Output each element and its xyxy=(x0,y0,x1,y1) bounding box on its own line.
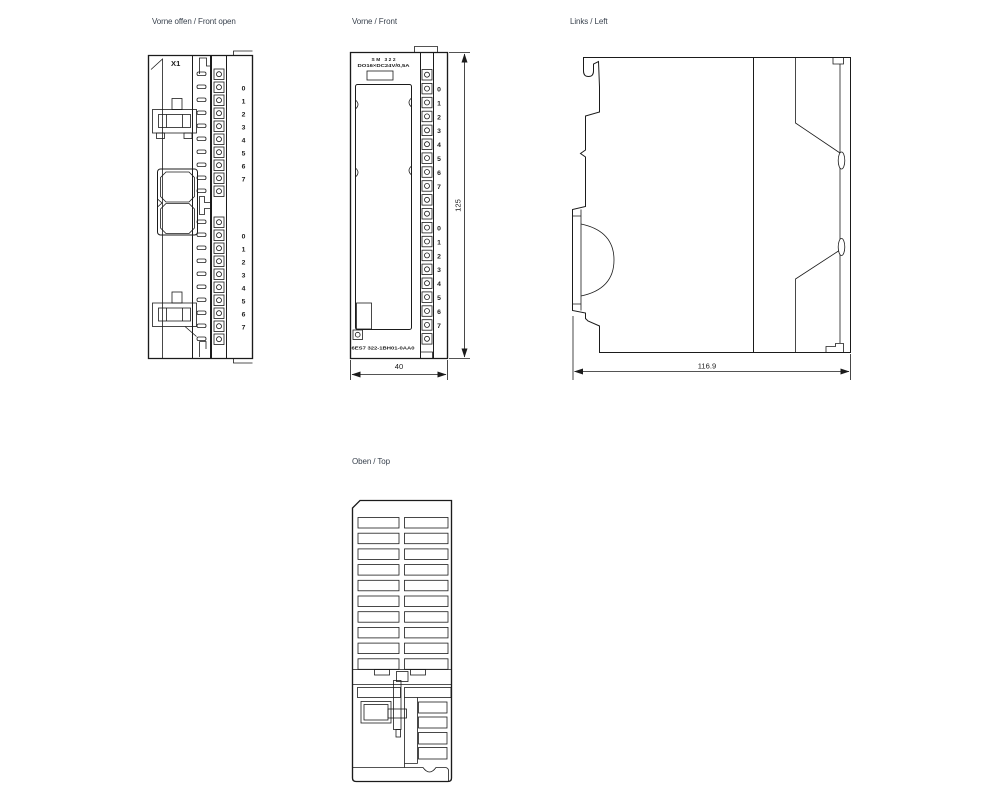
channel-numbers-upper: 01234567 xyxy=(437,87,441,191)
channel-number: 6 xyxy=(437,170,441,177)
led-windows-lower xyxy=(197,220,206,341)
front-edge-band xyxy=(353,768,449,782)
channel-number: 0 xyxy=(437,226,441,233)
connector-x1-label: X1 xyxy=(171,59,181,68)
front-door xyxy=(356,85,412,330)
channel-numbers-upper: 01234567 xyxy=(242,86,246,184)
channel-number: 3 xyxy=(437,267,441,274)
module-type-label: SM 322 xyxy=(372,57,396,63)
channel-number: 5 xyxy=(437,156,441,163)
front-connector-block xyxy=(361,681,407,738)
module-outline xyxy=(351,53,448,359)
wire-clamp-bottom xyxy=(153,292,197,337)
bus-connector-sockets xyxy=(158,169,198,235)
terminal-strip xyxy=(421,53,434,359)
dimension-height-125: 125 xyxy=(449,53,470,359)
channel-numbers-lower: 01234567 xyxy=(242,234,246,332)
channel-number: 7 xyxy=(242,325,246,332)
module-outline xyxy=(353,501,452,782)
dim-label-125: 125 xyxy=(454,199,463,212)
channel-number: 5 xyxy=(437,295,441,302)
channel-number: 4 xyxy=(242,138,246,145)
terminal-block xyxy=(422,70,432,345)
bottom-tab xyxy=(421,352,433,359)
order-number-label: 6ES7 322-1BH01-0AA0 xyxy=(352,346,415,352)
channel-number: 6 xyxy=(242,164,246,171)
channel-number: 4 xyxy=(242,286,246,293)
channel-number: 6 xyxy=(437,309,441,316)
mounting-screw-slot xyxy=(200,197,212,215)
view-front: SM 322 DO16×DC24V/0,5A 6ES7 322-1BH01-0A… xyxy=(351,47,471,381)
channel-number: 7 xyxy=(437,323,441,330)
dimension-depth-116-9: 116.9 xyxy=(573,316,851,380)
channel-number: 4 xyxy=(437,142,441,149)
wire-clamp-top xyxy=(153,99,197,139)
channel-number: 2 xyxy=(242,260,246,267)
view-front-open: X1 xyxy=(149,51,253,363)
channel-number: 3 xyxy=(242,273,246,280)
terminal-block-upper xyxy=(214,69,224,197)
channel-number: 1 xyxy=(242,247,246,254)
led-windows-upper xyxy=(197,72,206,193)
channel-number: 4 xyxy=(437,281,441,288)
channel-number: 0 xyxy=(242,234,246,241)
dimension-drawing-page: Vorne offen / Front open Vorne / Front L… xyxy=(0,0,1000,801)
module-spec-label: DO16×DC24V/0,5A xyxy=(358,63,411,69)
channel-number: 5 xyxy=(242,151,246,158)
channel-number: 2 xyxy=(437,114,441,121)
lower-slots-and-channel xyxy=(358,688,452,768)
channel-number: 7 xyxy=(242,177,246,184)
side-profile-outline xyxy=(573,58,851,353)
terminal-strip xyxy=(212,56,227,359)
channel-number: 1 xyxy=(437,239,441,246)
module-outline xyxy=(149,56,253,359)
front-door-profile xyxy=(796,58,845,353)
terminal-block-lower xyxy=(214,217,224,345)
channel-number: 0 xyxy=(242,86,246,93)
channel-number: 7 xyxy=(437,184,441,191)
channel-number: 1 xyxy=(437,100,441,107)
channel-number: 3 xyxy=(437,128,441,135)
channel-numbers-lower: 01234567 xyxy=(437,226,441,330)
dimension-width-40: 40 xyxy=(351,360,448,380)
dim-label-116-9: 116.9 xyxy=(698,362,716,371)
housing-seam-band xyxy=(353,670,452,685)
channel-number: 0 xyxy=(437,87,441,94)
channel-number: 1 xyxy=(242,99,246,106)
backplane-bus-connector xyxy=(573,210,615,311)
view-left: 116.9 xyxy=(573,58,851,381)
fuse-window xyxy=(367,71,393,80)
channel-number: 5 xyxy=(242,299,246,306)
led-strip xyxy=(193,56,212,359)
view-top xyxy=(353,501,452,782)
channel-number: 6 xyxy=(242,312,246,319)
bottom-screw-terminal xyxy=(353,330,363,340)
channel-number: 2 xyxy=(242,112,246,119)
ventilation-slots xyxy=(358,518,448,670)
channel-number: 2 xyxy=(437,253,441,260)
drawing-canvas: X1 xyxy=(0,0,1000,801)
channel-number: 3 xyxy=(242,125,246,132)
dim-label-40: 40 xyxy=(395,362,403,371)
top-tab xyxy=(415,47,438,53)
door-label-window xyxy=(357,303,372,329)
